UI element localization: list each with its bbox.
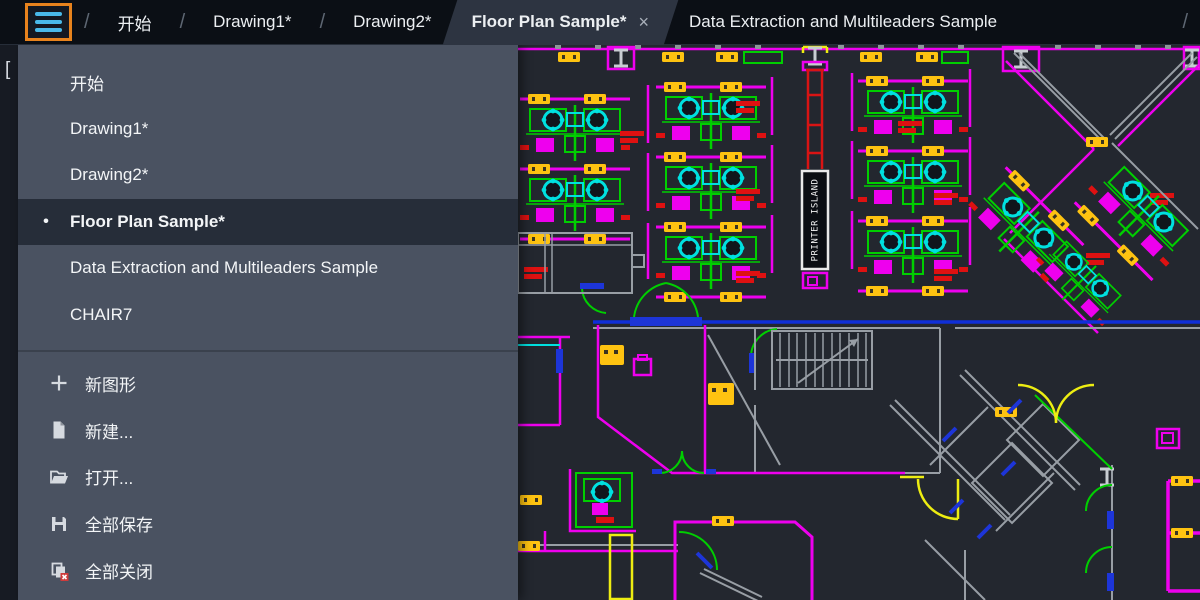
- tab-separator: /: [320, 11, 326, 34]
- layout-bracket: [: [5, 59, 10, 81]
- drawing-tab-bar: / 开始 / Drawing1* / Drawing2* Floor Plan …: [0, 0, 1200, 45]
- active-file-bullet: •: [43, 211, 49, 231]
- tab-start[interactable]: 开始: [102, 0, 168, 45]
- tab-separator: /: [180, 11, 186, 34]
- open-folder-icon: [48, 466, 70, 488]
- menu-item-close-all[interactable]: 全部关闭: [18, 547, 518, 594]
- menu-item-floor-plan-sample[interactable]: • Floor Plan Sample*: [18, 199, 518, 246]
- printer-island-label: PRINTER ISLAND: [811, 179, 821, 262]
- hamburger-icon: [35, 28, 62, 32]
- close-tab-icon[interactable]: ×: [639, 12, 650, 33]
- tab-separator: /: [84, 11, 90, 34]
- new-file-icon: [48, 419, 70, 441]
- menu-item-open[interactable]: 打开...: [18, 454, 518, 501]
- open-files-section: 开始 Drawing1* Drawing2* • Floor Plan Samp…: [18, 45, 518, 338]
- menu-item-drawing1[interactable]: Drawing1*: [18, 106, 518, 153]
- file-menu-dropdown: 开始 Drawing1* Drawing2* • Floor Plan Samp…: [18, 45, 518, 600]
- menu-item-save-all[interactable]: 全部保存: [18, 500, 518, 547]
- menu-item-new-file[interactable]: 新建...: [18, 407, 518, 454]
- menu-separator: [18, 350, 518, 352]
- menu-item-chair7[interactable]: CHAIR7: [18, 292, 518, 339]
- tab-floor-plan-sample[interactable]: Floor Plan Sample* ×: [454, 0, 667, 45]
- hamburger-menu-button[interactable]: [25, 3, 72, 41]
- cad-application-window: PRINTER ISLAND: [0, 0, 1200, 600]
- tab-drawing2[interactable]: Drawing2*: [337, 0, 447, 45]
- menu-item-drawing2[interactable]: Drawing2*: [18, 152, 518, 199]
- save-all-icon: [48, 513, 70, 535]
- hamburger-icon: [35, 20, 62, 24]
- menu-item-new-drawing[interactable]: 新图形: [18, 360, 518, 407]
- menu-item-data-extraction-sample[interactable]: Data Extraction and Multileaders Sample: [18, 245, 518, 292]
- canvas-left-edge: [: [0, 45, 18, 600]
- menu-item-start[interactable]: 开始: [18, 59, 518, 106]
- tab-separator: /: [1182, 11, 1188, 34]
- close-all-icon: [48, 560, 70, 582]
- hamburger-icon: [35, 12, 62, 16]
- plus-icon: [48, 372, 70, 394]
- tab-data-extraction-sample[interactable]: Data Extraction and Multileaders Sample: [673, 0, 1013, 45]
- file-commands-section: 新图形 新建... 打开...: [18, 360, 518, 594]
- tab-drawing1[interactable]: Drawing1*: [197, 0, 307, 45]
